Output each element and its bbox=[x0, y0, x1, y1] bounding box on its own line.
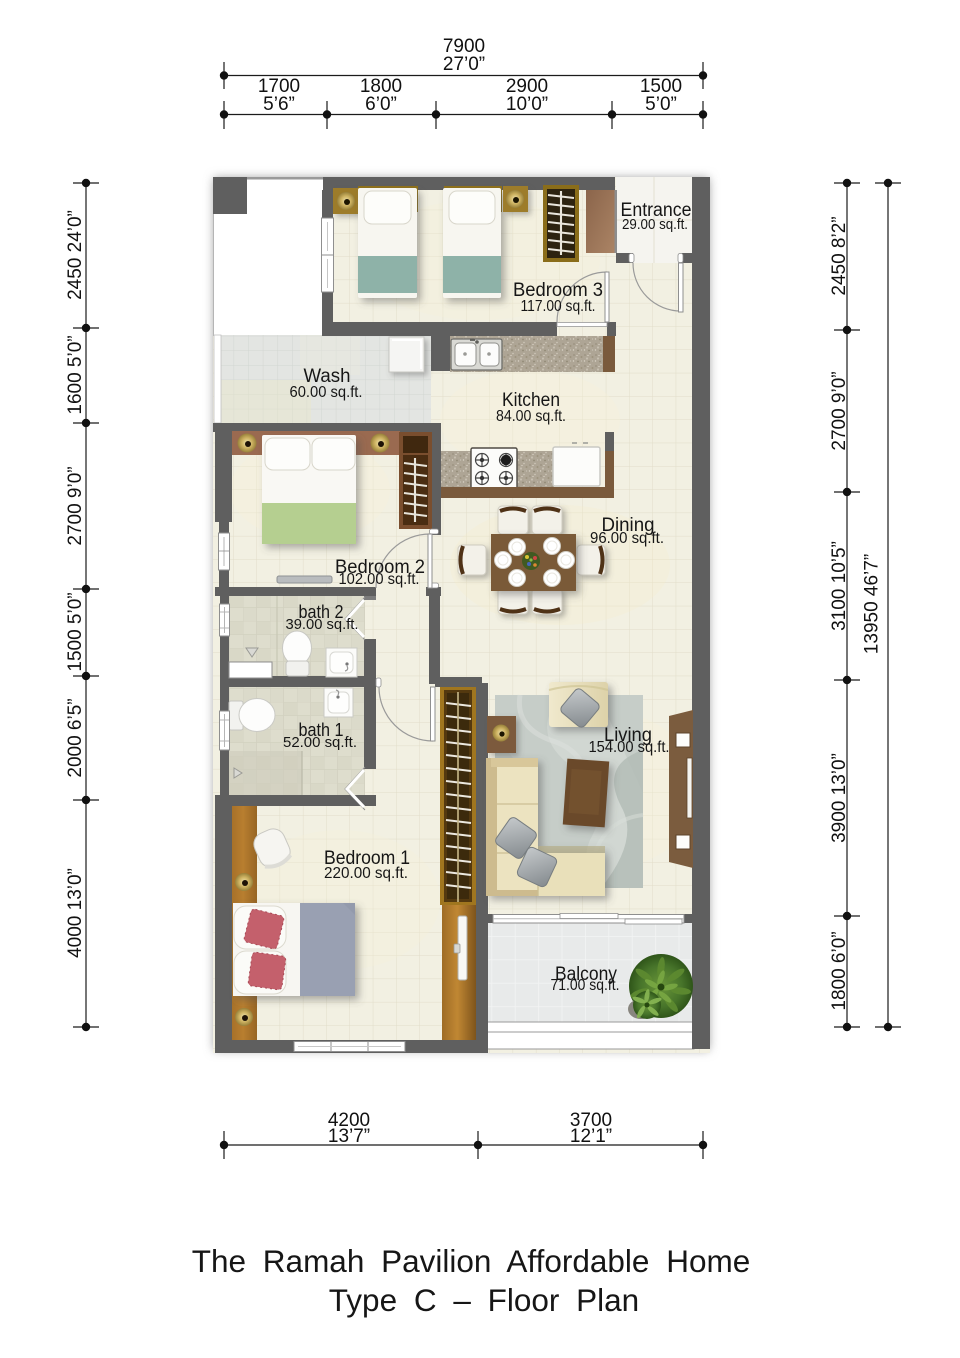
svg-text:1800 6’0”: 1800 6’0” bbox=[829, 931, 850, 1010]
svg-text:1500 5’0”: 1500 5’0” bbox=[65, 592, 86, 671]
svg-text:29.00 sq.ft.: 29.00 sq.ft. bbox=[622, 217, 688, 233]
svg-text:154.00 sq.ft.: 154.00 sq.ft. bbox=[589, 739, 670, 756]
svg-text:117.00 sq.ft.: 117.00 sq.ft. bbox=[521, 298, 596, 315]
svg-text:39.00 sq.ft.: 39.00 sq.ft. bbox=[286, 617, 359, 633]
svg-text:5’0”: 5’0” bbox=[645, 94, 677, 115]
svg-text:27’0”: 27’0” bbox=[443, 54, 485, 75]
svg-text:71.00 sq.ft.: 71.00 sq.ft. bbox=[551, 977, 620, 994]
svg-text:2000 6’5”: 2000 6’5” bbox=[65, 698, 86, 777]
svg-text:4000 13’0”: 4000 13’0” bbox=[65, 868, 86, 958]
svg-text:10’0”: 10’0” bbox=[506, 94, 548, 115]
svg-text:3100 10’5”: 3100 10’5” bbox=[829, 541, 850, 631]
svg-text:13’7”: 13’7” bbox=[328, 1126, 370, 1147]
svg-text:84.00 sq.ft.: 84.00 sq.ft. bbox=[496, 408, 566, 425]
svg-text:2700 9’0”: 2700 9’0” bbox=[65, 466, 86, 545]
svg-text:2700 9’0”: 2700 9’0” bbox=[829, 371, 850, 450]
svg-text:2450 24’0”: 2450 24’0” bbox=[65, 210, 86, 300]
svg-text:3900 13’0”: 3900 13’0” bbox=[829, 753, 850, 843]
svg-text:Type C – Floor Plan: Type C – Floor Plan bbox=[329, 1282, 639, 1318]
svg-text:60.00 sq.ft.: 60.00 sq.ft. bbox=[290, 384, 363, 401]
svg-text:13950 46’7”: 13950 46’7” bbox=[862, 554, 883, 654]
svg-text:12’1”: 12’1” bbox=[570, 1126, 612, 1147]
svg-text:5’6”: 5’6” bbox=[263, 94, 295, 115]
svg-text:102.00 sq.ft.: 102.00 sq.ft. bbox=[339, 571, 420, 588]
svg-text:1600 5’0”: 1600 5’0” bbox=[65, 335, 86, 414]
svg-text:6’0”: 6’0” bbox=[365, 94, 397, 115]
svg-text:96.00 sq.ft.: 96.00 sq.ft. bbox=[590, 530, 664, 547]
svg-text:52.00 sq.ft.: 52.00 sq.ft. bbox=[283, 735, 357, 751]
svg-text:220.00 sq.ft.: 220.00 sq.ft. bbox=[324, 865, 408, 882]
svg-text:2450 8’2”: 2450 8’2” bbox=[829, 216, 850, 295]
svg-text:The Ramah Pavilion Affordable: The Ramah Pavilion Affordable Home bbox=[192, 1243, 750, 1279]
